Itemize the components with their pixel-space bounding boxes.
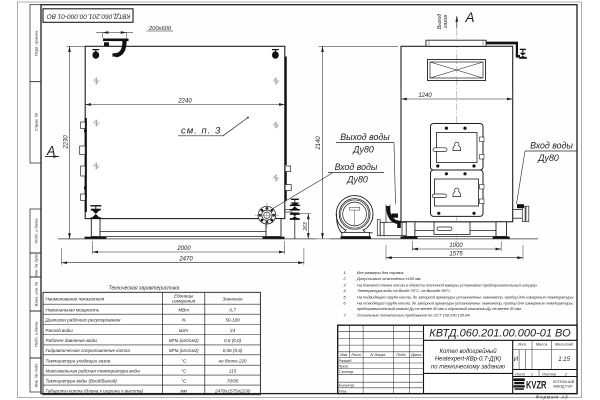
svg-text:Н.контр.: Н.контр.: [339, 383, 355, 388]
svg-text:1000: 1000: [449, 243, 463, 249]
svg-text:Подп. и дата: Подп. и дата: [34, 218, 39, 244]
svg-text:2230: 2230: [63, 135, 69, 150]
svg-text:1575: 1575: [449, 252, 463, 258]
svg-text:А: А: [46, 144, 55, 158]
svg-text:Техническая характеристика: Техническая характеристика: [109, 285, 180, 291]
svg-text:Допустимые отклонения ±100 мм.: Допустимые отклонения ±100 мм.: [356, 276, 422, 281]
svg-text:Пров.: Пров.: [339, 364, 349, 369]
svg-text:Лист: Лист: [350, 352, 362, 357]
svg-text:KVZR: KVZR: [526, 380, 547, 392]
svg-text:Листов: Листов: [541, 371, 556, 376]
svg-text:Масса: Масса: [536, 341, 548, 346]
svg-text:Рабочее давление воды: Рабочее давление воды: [46, 338, 98, 343]
svg-text:263: 263: [303, 222, 309, 232]
svg-text:Взам. инв. №: Взам. инв. №: [34, 281, 39, 306]
svg-text:1:15: 1:15: [558, 357, 570, 363]
svg-text:мм: мм: [181, 388, 188, 393]
svg-text:Гидравлическое сопротивление к: Гидравлическое сопротивление котла: [46, 348, 131, 353]
svg-text:ЗАВОД РЭП: ЗАВОД РЭП: [553, 385, 573, 389]
svg-text:Температура воды (Вход/Выход): Температура воды (Вход/Выход): [46, 379, 118, 384]
svg-text:Остальные технические требован: Остальные технические требования по ОСТ …: [357, 312, 471, 317]
svg-text:Лист: Лист: [514, 371, 526, 376]
svg-text:2140: 2140: [316, 136, 322, 151]
svg-text:Утв.: Утв.: [339, 388, 348, 393]
svg-text:Дата: Дата: [410, 352, 422, 357]
svg-text:Ду80: Ду80: [352, 145, 374, 155]
svg-text:0,06 (0,6): 0,06 (0,6): [223, 348, 243, 353]
svg-text:м3/ч: м3/ч: [179, 328, 189, 333]
svg-text:На подводящей трубе котла, д: На подводящей трубе котла, до запорной а…: [357, 294, 573, 299]
svg-text:КВТД.060.201.00.000-01 ВО: КВТД.060.201.00.000-01 ВО: [47, 12, 131, 19]
svg-text:не более 220: не более 220: [219, 358, 247, 363]
svg-text:Масштаб: Масштаб: [555, 341, 574, 346]
svg-text:50-100: 50-100: [225, 318, 240, 323]
svg-text:Лит.: Лит.: [517, 341, 527, 346]
svg-text:Выход воды: Выход воды: [340, 132, 390, 142]
svg-text:Вход воды: Вход воды: [335, 162, 378, 172]
svg-text:Перв. примен.: Перв. примен.: [34, 30, 39, 57]
svg-text:Температура воды на Входе 70°С: Температура воды на Входе 70°С, на Выход…: [357, 288, 451, 293]
svg-text:Вход воды: Вход воды: [530, 141, 573, 151]
svg-text:Номинальная мощность: Номинальная мощность: [46, 308, 100, 313]
svg-text:0,6 (6,0): 0,6 (6,0): [224, 338, 242, 343]
svg-text:И: И: [514, 357, 519, 363]
svg-text:Температура уходящих газов: Температура уходящих газов: [46, 358, 111, 363]
svg-text:Подп.: Подп.: [396, 352, 406, 357]
svg-text:Разраб.: Разраб.: [339, 358, 353, 363]
svg-text:МВт: МВт: [178, 308, 189, 313]
svg-text:Справ. №: Справ. №: [34, 112, 39, 131]
svg-text:Инв. № подл.: Инв. № подл.: [34, 363, 39, 388]
svg-text:Расход воды: Расход воды: [46, 328, 74, 333]
svg-text:Диапазон рабочего регулировани: Диапазон рабочего регулирования: [45, 318, 122, 323]
svg-text:Изм: Изм: [340, 352, 348, 357]
svg-text:Инв. № дубл.: Инв. № дубл.: [34, 253, 39, 278]
svg-text:1: 1: [531, 371, 533, 376]
svg-text:см. п. 3: см. п. 3: [181, 126, 221, 137]
svg-text:°С: °С: [181, 358, 187, 363]
svg-text:1240: 1240: [418, 93, 432, 99]
svg-text:°С: °С: [181, 379, 187, 384]
svg-text:по техническому заданию: по техническому заданию: [431, 364, 506, 370]
svg-text:На боковой стенке котла в обла: На боковой стенке котла в области топочн…: [357, 282, 538, 287]
svg-text:Все размеры для справок: Все размеры для справок: [357, 270, 405, 275]
svg-text:А: А: [465, 10, 475, 25]
svg-text:%: %: [182, 318, 186, 323]
svg-text:2000: 2000: [176, 246, 191, 252]
svg-text:2240: 2240: [177, 98, 192, 104]
svg-text:115: 115: [229, 369, 237, 374]
svg-text:Т.контр.: Т.контр.: [339, 369, 355, 374]
svg-text:Котел водогрейный: Котел водогрейный: [439, 348, 497, 355]
svg-text:°С: °С: [181, 369, 187, 374]
svg-text:измерения: измерения: [172, 299, 196, 304]
svg-text:предохранительный клапан Ду не: предохранительный клапан Ду не менее 50 …: [357, 306, 522, 311]
svg-text:24: 24: [229, 328, 236, 333]
svg-text:2470: 2470: [178, 257, 193, 263]
svg-text:Ду80: Ду80: [346, 175, 368, 185]
svg-text:КОТЕЛЬНЫЙ: КОТЕЛЬНЫЙ: [553, 380, 575, 384]
svg-text:Значение: Значение: [223, 297, 244, 302]
svg-text:1: 1: [343, 270, 345, 275]
svg-text:0,7: 0,7: [229, 308, 236, 313]
svg-text:Наименование показателя: Наименование показателя: [46, 297, 105, 302]
svg-text:Максимальная рабочая температу: Максимальная рабочая температура воды: [46, 369, 141, 374]
svg-text:КВТД.060.201.00.000-01 ВО: КВТД.060.201.00.000-01 ВО: [429, 328, 571, 340]
svg-text:Формат А3: Формат А3: [536, 395, 569, 400]
svg-text:2470х1575х2230: 2470х1575х2230: [214, 388, 251, 393]
svg-text:Габариты котла (длина х ширина: Габариты котла (длина х ширина х высота): [46, 388, 144, 393]
svg-text:газов: газов: [443, 15, 449, 28]
svg-text:МПа (кгс/см2): МПа (кгс/см2): [169, 338, 199, 343]
svg-text:Подп. и дата: Подп. и дата: [34, 321, 39, 347]
svg-text:Ду80: Ду80: [537, 153, 559, 163]
svg-text:70/95: 70/95: [227, 379, 239, 384]
svg-text:На отводящей трубе котла, до з: На отводящей трубе котла, до запорной ар…: [357, 300, 573, 305]
svg-text:Heatexpert-КВр-0,7-Д(К): Heatexpert-КВр-0,7-Д(К): [435, 357, 501, 363]
svg-text:N докум.: N докум.: [370, 352, 386, 357]
svg-text:МПа (кгс/см2): МПа (кгс/см2): [169, 348, 199, 353]
